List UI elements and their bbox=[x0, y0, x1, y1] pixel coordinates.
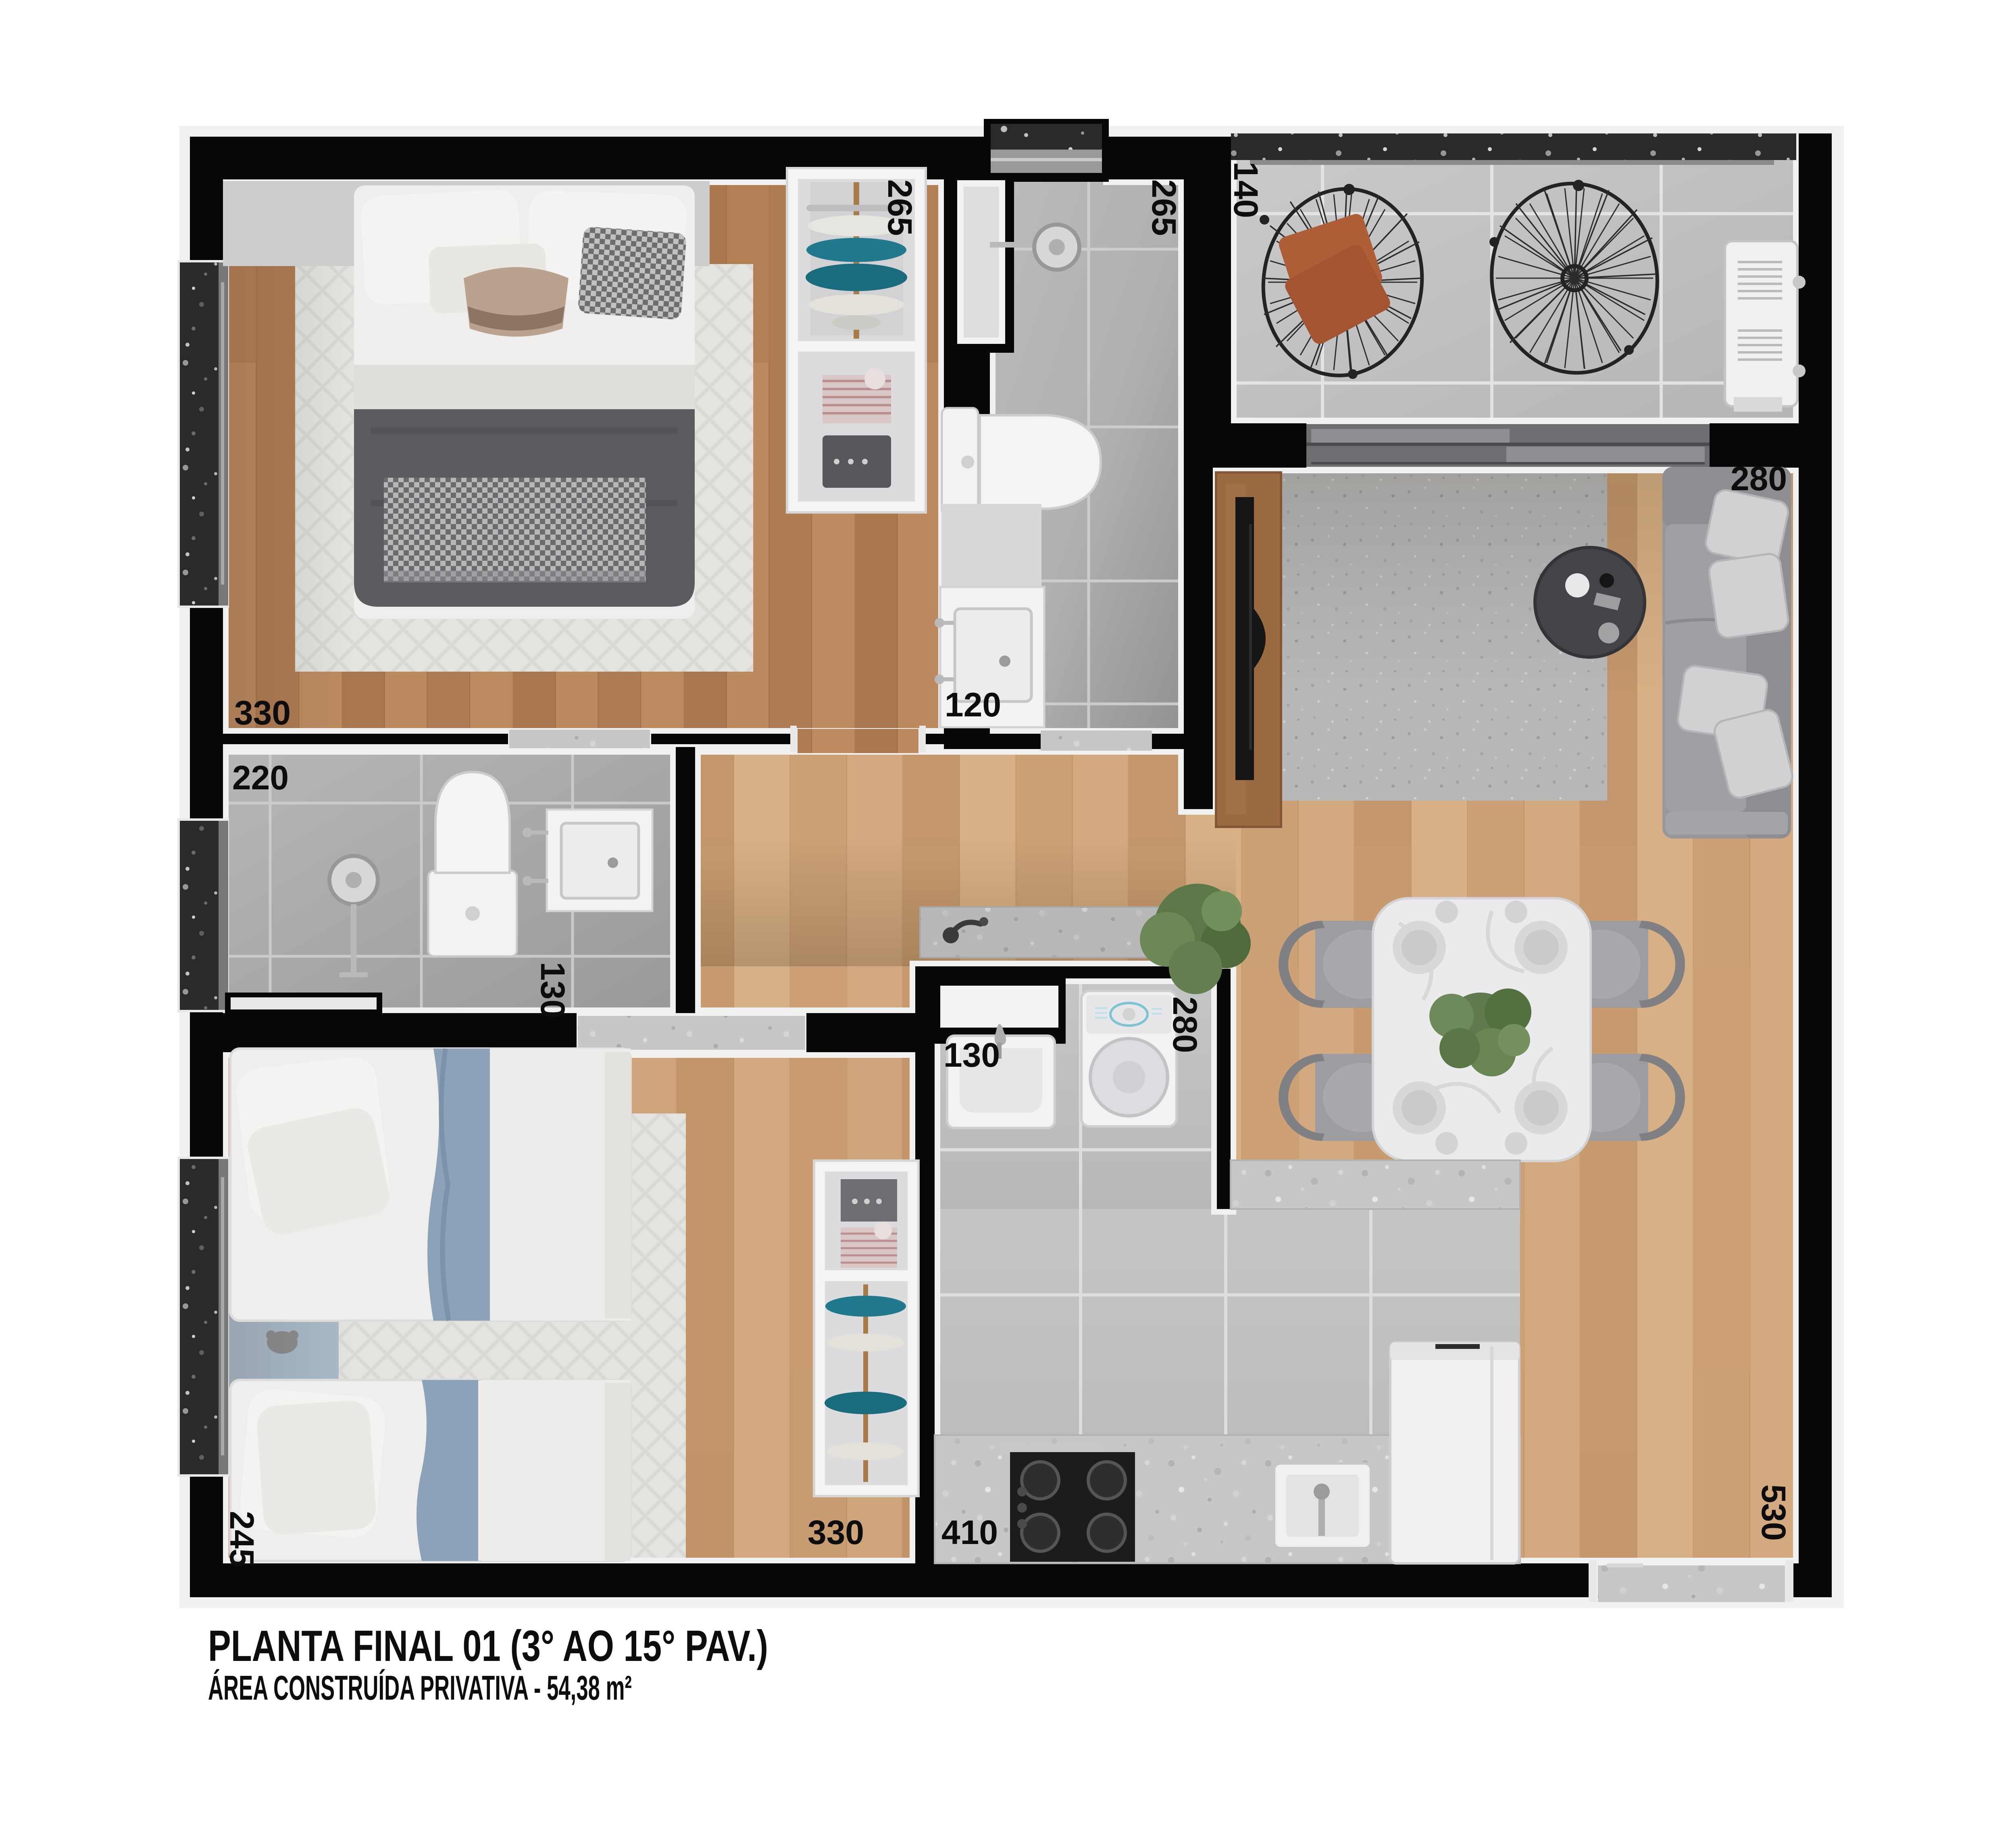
svg-text:130: 130 bbox=[943, 1036, 1000, 1074]
svg-text:PLANTA FINAL 01 (3° AO 15° PAV: PLANTA FINAL 01 (3° AO 15° PAV.) bbox=[208, 1621, 768, 1671]
svg-text:410: 410 bbox=[941, 1513, 998, 1551]
svg-text:ÁREA CONSTRUÍDA PRIVATIVA - 54: ÁREA CONSTRUÍDA PRIVATIVA - 54,38 m² bbox=[208, 1669, 632, 1707]
svg-text:280: 280 bbox=[1731, 460, 1787, 497]
svg-text:245: 245 bbox=[223, 1511, 261, 1567]
svg-text:220: 220 bbox=[232, 759, 289, 797]
svg-text:265: 265 bbox=[1145, 179, 1183, 236]
svg-text:120: 120 bbox=[945, 686, 1001, 724]
svg-text:140: 140 bbox=[1227, 162, 1265, 218]
svg-text:280: 280 bbox=[1166, 997, 1204, 1053]
svg-text:330: 330 bbox=[234, 694, 291, 732]
svg-text:330: 330 bbox=[808, 1513, 864, 1551]
svg-text:130: 130 bbox=[534, 962, 572, 1018]
svg-text:530: 530 bbox=[1755, 1484, 1793, 1541]
svg-text:265: 265 bbox=[881, 179, 919, 236]
